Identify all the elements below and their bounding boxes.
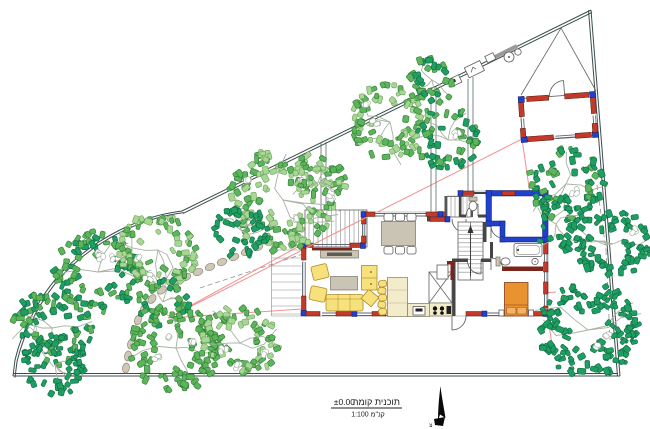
stepping-stone xyxy=(216,257,228,267)
pillow xyxy=(517,308,527,315)
tree-leaf xyxy=(307,214,313,219)
tree-leaf xyxy=(572,345,580,353)
dining-chair xyxy=(396,214,405,222)
toilet-tank xyxy=(469,197,477,201)
tree-leaf xyxy=(287,219,294,226)
bedroom xyxy=(499,283,534,317)
tree-leaf xyxy=(359,94,365,100)
tree xyxy=(573,209,650,278)
tree-leaf xyxy=(588,252,595,257)
tree-leaf xyxy=(211,362,218,369)
tree-leaf xyxy=(324,205,329,210)
tree-leaf xyxy=(58,388,65,396)
tree-leaf xyxy=(537,238,544,243)
north-label: צ xyxy=(429,423,433,429)
tree-leaf xyxy=(86,336,92,344)
tree-leaf xyxy=(211,352,215,357)
tree-leaf xyxy=(436,165,444,170)
deck xyxy=(272,246,302,316)
tree-leaf xyxy=(200,343,208,351)
tree-leaf xyxy=(51,292,60,301)
tree-leaf xyxy=(278,162,283,169)
paths-and-fences xyxy=(321,46,521,214)
tree-leaf xyxy=(167,319,173,323)
fridge xyxy=(437,265,448,279)
stepping-stone xyxy=(122,363,130,374)
tree-leaf xyxy=(526,169,534,175)
tree-leaf xyxy=(215,220,220,227)
tree-leaf xyxy=(397,132,405,141)
tree-leaf xyxy=(436,98,444,106)
tree-leaf xyxy=(575,205,581,210)
tree-leaf xyxy=(555,325,564,333)
tree-leaf xyxy=(175,326,183,335)
tree-leaf xyxy=(70,379,79,384)
tree-leaf xyxy=(51,300,56,309)
tree-leaf xyxy=(244,310,249,317)
tree-leaf xyxy=(76,295,82,301)
tree-leaf xyxy=(533,199,539,206)
tree-leaf xyxy=(228,181,236,190)
tree-leaf xyxy=(130,231,135,238)
tree-leaf xyxy=(473,138,479,145)
tree-leaf xyxy=(572,169,578,176)
tree xyxy=(415,108,481,171)
tree-leaf xyxy=(89,228,96,234)
tree-leaf xyxy=(618,312,626,316)
tree-leaf xyxy=(80,300,88,306)
tree-leaf xyxy=(228,192,236,201)
tree-leaf xyxy=(73,241,79,246)
tree-leaf xyxy=(618,268,623,276)
tree-leaf xyxy=(391,82,396,88)
tree-leaf xyxy=(569,156,576,165)
tree-leaf xyxy=(232,236,241,243)
nightstand xyxy=(499,310,504,316)
tree-leaf xyxy=(41,379,47,387)
tree-leaf xyxy=(606,347,614,353)
tree-leaf xyxy=(417,147,421,154)
tree-leaf xyxy=(192,244,200,252)
coffee-table xyxy=(331,277,358,291)
tree-leaf xyxy=(64,288,71,293)
tree-leaf xyxy=(595,254,602,262)
utility-box xyxy=(464,61,484,78)
tree-leaf xyxy=(202,362,208,368)
toilet-bowl xyxy=(469,201,477,211)
tree-leaf xyxy=(223,219,231,226)
tree-leaf xyxy=(627,325,633,331)
tree-leaf xyxy=(576,223,585,232)
tree-leaf xyxy=(255,364,262,371)
tree-leaf xyxy=(144,365,150,373)
tree-leaf xyxy=(424,64,432,72)
tree-leaf xyxy=(619,359,626,365)
tree-leaf xyxy=(151,346,158,353)
tree-leaf xyxy=(176,250,182,257)
floor-plan-drawing: צ ±0.00 תוכנית קומה קנ"מ 1:100 xyxy=(0,0,650,429)
tree-leaf xyxy=(585,184,592,192)
dining-chair xyxy=(384,214,393,222)
tree-leaf xyxy=(187,240,192,247)
tree-leaf xyxy=(65,365,72,372)
tree-leaf xyxy=(580,292,588,300)
tree-leaf xyxy=(182,271,187,279)
tree-leaf xyxy=(140,351,148,359)
tree-leaf xyxy=(136,237,145,245)
tree-leaf xyxy=(255,181,262,188)
tree-leaf xyxy=(263,185,268,192)
tree-leaf xyxy=(64,313,72,320)
tree-leaf xyxy=(103,241,110,245)
tree-leaf xyxy=(257,172,261,177)
tree-leaf xyxy=(16,316,24,321)
tree-leaf xyxy=(300,162,306,166)
tree-leaf xyxy=(424,152,429,158)
tree-leaf xyxy=(175,240,182,246)
tree-leaf xyxy=(633,256,640,264)
tree-leaf xyxy=(574,235,580,241)
tree-leaf xyxy=(457,147,462,154)
tree-leaf xyxy=(200,350,205,356)
tree-leaf xyxy=(78,241,84,248)
tree-leaf xyxy=(30,380,37,388)
tree-leaf xyxy=(169,217,174,223)
garage xyxy=(517,28,598,143)
tree-leaf xyxy=(28,367,36,372)
tree-leaf xyxy=(594,214,603,222)
tree-leaf xyxy=(249,236,255,243)
tree-leaf xyxy=(117,251,122,257)
tree-leaf xyxy=(311,191,316,199)
tree-leaf xyxy=(577,368,586,374)
tree-leaf xyxy=(549,180,556,189)
tree-leaf xyxy=(445,93,452,100)
tree-leaf xyxy=(468,153,477,162)
tree-leaf xyxy=(169,247,176,255)
tree-leaf xyxy=(368,128,376,135)
tree-leaf xyxy=(188,310,193,318)
tree-leaf xyxy=(58,247,66,256)
tree-leaf xyxy=(590,157,597,166)
tree-leaf xyxy=(74,349,78,356)
tree-leaf xyxy=(382,154,390,160)
tree-leaf xyxy=(36,295,43,301)
tree-leaf xyxy=(67,388,73,394)
tree-blossom xyxy=(101,254,105,260)
tree-leaf xyxy=(474,132,478,138)
tree-leaf xyxy=(216,322,223,330)
tree-leaf xyxy=(402,115,409,123)
tree-leaf xyxy=(293,170,298,176)
tree-leaf xyxy=(325,215,330,221)
toilet-tank xyxy=(496,257,500,266)
tree-leaf xyxy=(269,168,277,175)
tree-leaf xyxy=(35,365,41,369)
tree-blossom xyxy=(364,101,369,107)
tree-leaf xyxy=(77,359,82,366)
tree-leaf xyxy=(539,345,546,350)
tree-blossom xyxy=(218,348,223,355)
tree-leaf xyxy=(559,287,565,294)
tree-leaf xyxy=(541,206,549,210)
tree-leaf xyxy=(273,226,281,233)
tree-leaf xyxy=(97,287,105,296)
tree-leaf xyxy=(201,337,209,343)
north-arrow: צ xyxy=(429,386,446,429)
tree-leaf xyxy=(427,97,435,105)
tree-leaf xyxy=(254,308,262,316)
tree-leaf xyxy=(155,228,162,235)
tree-leaf xyxy=(149,284,155,291)
post xyxy=(515,49,521,55)
garage-door-arc xyxy=(549,81,565,97)
tree-leaf xyxy=(305,239,310,245)
tree-leaf xyxy=(301,190,309,194)
stepping-stone xyxy=(204,262,216,272)
tree-leaf xyxy=(416,56,424,65)
tree-leaf xyxy=(159,277,166,285)
tree-leaf xyxy=(549,160,556,167)
tree-blossom xyxy=(246,177,251,183)
dining-chair xyxy=(396,247,405,255)
tree-leaf xyxy=(557,195,565,204)
tree-leaf xyxy=(72,337,77,344)
tree-leaf xyxy=(612,357,619,363)
dining-set xyxy=(382,214,417,255)
tree-leaf xyxy=(74,369,80,375)
tree-leaf xyxy=(40,361,47,369)
site-plan-svg: צ ±0.00 תוכנית קומה קנ"מ 1:100 xyxy=(0,0,650,429)
tree-leaf xyxy=(120,263,127,267)
tree-leaf xyxy=(603,354,611,360)
tree-leaf xyxy=(22,350,29,355)
pillow xyxy=(507,308,517,315)
tree-leaf xyxy=(631,214,639,220)
tree-leaf xyxy=(223,305,232,313)
tree-leaf xyxy=(463,118,470,127)
scale-label: קנ"מ 1:100 xyxy=(351,412,385,419)
tree-leaf xyxy=(588,245,597,253)
tree-leaf xyxy=(251,192,257,200)
tree-leaf xyxy=(630,268,637,274)
tree-leaf xyxy=(585,360,590,368)
tree-leaf xyxy=(175,218,182,227)
tree-leaf xyxy=(21,357,28,363)
tree-leaf xyxy=(556,365,561,369)
nightstand xyxy=(529,310,534,316)
tree-leaf xyxy=(565,350,570,356)
tree-leaf xyxy=(66,297,74,304)
tree-leaf xyxy=(600,180,609,187)
tree-leaf xyxy=(356,130,362,136)
tree-leaf xyxy=(128,258,133,265)
tree-leaf xyxy=(174,236,180,241)
tree-leaf xyxy=(366,86,372,95)
tree-leaf xyxy=(260,151,266,156)
tree-leaf xyxy=(434,141,441,149)
sofa xyxy=(326,295,363,312)
stepping-stone xyxy=(146,293,158,305)
tree-leaf xyxy=(140,321,148,328)
tree-leaf xyxy=(182,293,190,301)
tree-leaf xyxy=(336,179,342,185)
tree-leaf xyxy=(145,259,153,265)
tree-leaf xyxy=(72,327,79,333)
tree-leaf xyxy=(453,157,459,165)
tree-leaf xyxy=(167,226,173,234)
dining-chair xyxy=(407,214,416,222)
tree-leaf xyxy=(425,57,432,63)
patio-door-arc xyxy=(452,316,466,330)
tree-leaf xyxy=(124,227,130,234)
tree-leaf xyxy=(64,259,70,264)
tree-leaf xyxy=(547,324,553,330)
tree-leaf xyxy=(544,195,551,201)
tree-leaf xyxy=(419,153,425,160)
tree-leaf xyxy=(632,317,638,325)
armchair xyxy=(309,285,328,302)
tree-leaf xyxy=(189,251,197,260)
tree-leaf xyxy=(398,151,404,158)
dining-chair xyxy=(407,247,416,255)
tree-leaf xyxy=(187,362,194,369)
tree-leaf xyxy=(617,350,624,357)
drawing-title: תוכנית קומה xyxy=(353,397,400,407)
tree-leaf xyxy=(170,312,175,318)
tree-leaf xyxy=(440,67,449,76)
tree-leaf xyxy=(99,231,105,239)
tree-leaf xyxy=(264,226,270,232)
tree-leaf xyxy=(136,291,143,298)
dining-chair xyxy=(384,247,393,255)
tree-leaf xyxy=(325,172,332,177)
tree-leaf xyxy=(444,109,450,118)
tree-leaf xyxy=(368,137,373,143)
tree-leaf xyxy=(565,206,572,210)
tree-leaf xyxy=(599,226,604,234)
tree-leaf xyxy=(182,250,190,256)
tree xyxy=(211,206,271,259)
tree-leaf xyxy=(577,352,586,361)
tree-leaf xyxy=(47,390,55,398)
tree-leaf xyxy=(368,150,375,159)
tree-leaf xyxy=(162,307,168,314)
tree-leaf xyxy=(288,179,294,186)
carport-gable-lines xyxy=(521,28,596,95)
tree-leaf xyxy=(21,310,29,316)
tree-leaf xyxy=(415,100,422,107)
tree-leaf xyxy=(178,370,183,376)
tree-leaf xyxy=(298,155,305,162)
garden-stair xyxy=(305,210,367,247)
tree-leaf xyxy=(159,264,168,273)
title-block: ±0.00 תוכנית קומה קנ"מ 1:100 xyxy=(331,397,402,419)
dining-table xyxy=(382,222,416,246)
toilet-bowl xyxy=(501,258,510,265)
tree-leaf xyxy=(224,208,230,214)
tree-leaf xyxy=(438,126,445,130)
tree-leaf xyxy=(65,241,72,249)
tree-leaf xyxy=(74,302,80,310)
tree-leaf xyxy=(223,313,230,317)
tree-blossom xyxy=(594,342,601,347)
tree-leaf xyxy=(312,166,320,171)
tree-leaf xyxy=(591,196,596,203)
tree-leaf xyxy=(198,318,204,325)
tree-leaf xyxy=(50,307,57,315)
tree xyxy=(535,283,642,377)
tree-leaf xyxy=(29,342,36,349)
tree-leaf xyxy=(445,155,452,162)
